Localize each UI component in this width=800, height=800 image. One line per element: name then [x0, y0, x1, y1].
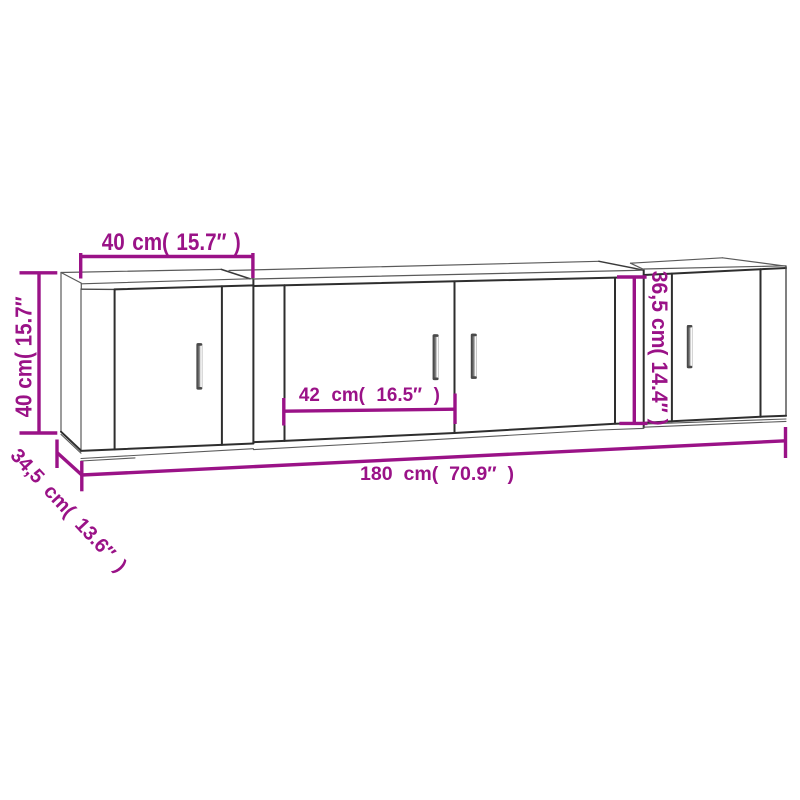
svg-text:36,5 cm( 14.4″ ): 36,5 cm( 14.4″ ): [647, 271, 672, 426]
svg-text:42 cm( 16.5″ ): 42 cm( 16.5″ ): [299, 384, 440, 406]
svg-text:40 cm( 15.7″ ): 40 cm( 15.7″ ): [102, 229, 241, 256]
svg-text:40 cm( 15.7″: 40 cm( 15.7″: [11, 296, 37, 417]
svg-text:180 cm( 70.9″ ): 180 cm( 70.9″ ): [360, 463, 514, 485]
